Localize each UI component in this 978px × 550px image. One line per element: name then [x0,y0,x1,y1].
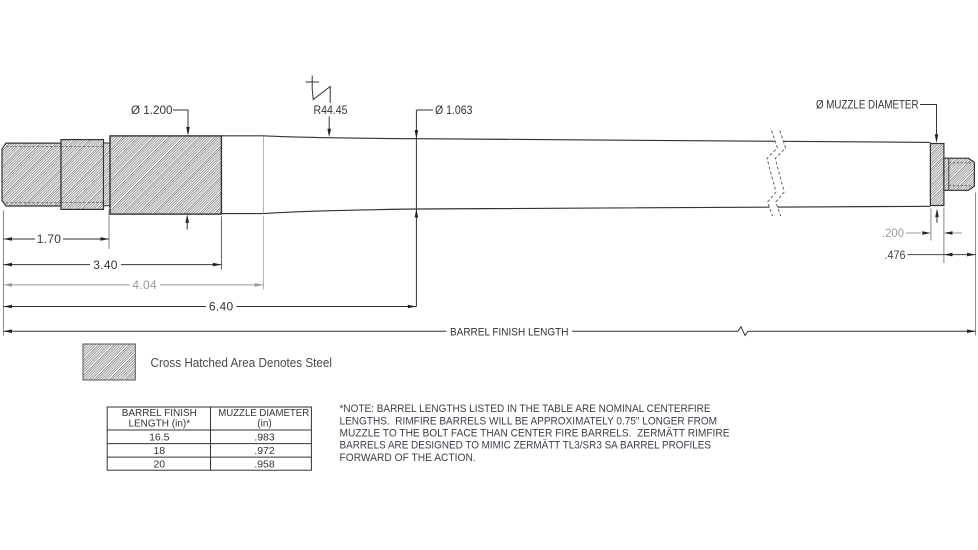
svg-text:1.70: 1.70 [37,232,62,246]
svg-text:16.5: 16.5 [149,431,170,443]
svg-text:.983: .983 [254,431,275,443]
svg-text:FORWARD OF THE ACTION.: FORWARD OF THE ACTION. [340,452,476,464]
svg-text:LENGTH (in)*: LENGTH (in)* [128,418,190,429]
svg-text:R44.45: R44.45 [314,103,348,117]
svg-text:Ø 1.200: Ø 1.200 [131,103,173,117]
svg-text:(in): (in) [257,418,271,429]
svg-text:4.04: 4.04 [132,278,157,292]
svg-text:MUZZLE TO THE BOLT FACE THAN C: MUZZLE TO THE BOLT FACE THAN CENTER FIRE… [340,428,730,440]
svg-text:.972: .972 [254,445,275,457]
svg-text:3.40: 3.40 [93,258,118,272]
svg-text:.200: .200 [882,226,904,240]
svg-text:*NOTE: BARREL LENGTHS LISTED I: *NOTE: BARREL LENGTHS LISTED IN THE TABL… [340,403,711,415]
svg-text:6.40: 6.40 [209,300,234,314]
svg-text:BARRELS ARE DESIGNED TO MIMIC: BARRELS ARE DESIGNED TO MIMIC ZERMÄTT TL… [340,440,712,452]
svg-text:.476: .476 [885,248,906,262]
svg-text:Ø MUZZLE DIAMETER: Ø MUZZLE DIAMETER [816,98,919,112]
svg-text:18: 18 [153,445,165,457]
svg-text:Cross Hatched Area Denotes Ste: Cross Hatched Area Denotes Steel [151,355,333,370]
svg-text:.958: .958 [254,458,275,470]
svg-text:BARREL FINISH LENGTH: BARREL FINISH LENGTH [450,327,569,339]
svg-text:Ø 1.063: Ø 1.063 [435,103,473,117]
svg-text:LENGTHS. RIMFIRE BARRELS WILL: LENGTHS. RIMFIRE BARRELS WILL BE APPROXI… [340,415,718,427]
svg-text:20: 20 [153,458,165,470]
